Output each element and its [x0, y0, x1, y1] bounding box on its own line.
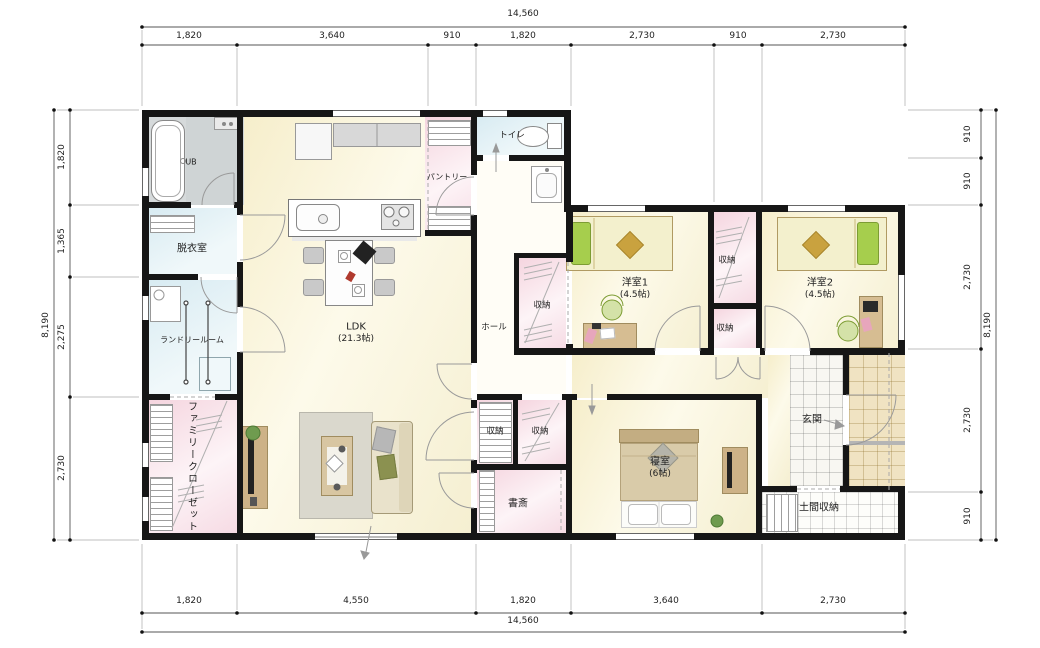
corridor	[572, 355, 768, 398]
closet-shelf	[150, 404, 173, 462]
placemat	[338, 250, 351, 263]
wall	[509, 155, 566, 161]
sofa-cushion	[376, 454, 397, 480]
entrance-hall-strip	[768, 355, 790, 486]
wall	[471, 215, 477, 363]
dining-chair	[374, 247, 395, 264]
bed-headboard	[619, 429, 699, 443]
label-bathroom: UB	[185, 159, 196, 168]
label-pantry: パントリー	[427, 174, 467, 183]
label-entrance: 玄関	[802, 415, 822, 426]
label-dressing: 脱衣室	[177, 244, 207, 255]
dining-chair	[374, 279, 395, 296]
window	[788, 205, 845, 212]
entrance-storage-shelf	[766, 494, 798, 532]
dim-top-segment: 1,820	[176, 31, 202, 41]
wall	[566, 400, 572, 533]
entrance-porch	[849, 353, 905, 490]
label-ldk: LDK	[346, 322, 366, 333]
dim-bottom-segment: 4,550	[343, 596, 369, 606]
wall	[708, 212, 714, 348]
label-hall: ホール	[481, 323, 507, 332]
wall	[898, 486, 905, 540]
dim-top-segment: 1,820	[510, 31, 536, 41]
window	[483, 110, 507, 117]
wall	[471, 508, 477, 533]
wall	[756, 400, 762, 533]
dim-right-segment: 910	[963, 507, 973, 524]
sofa-backrest	[399, 423, 412, 512]
window	[142, 296, 149, 320]
window	[142, 443, 149, 467]
wall	[566, 212, 573, 262]
washbasin-bowl	[536, 173, 557, 198]
wall	[477, 464, 566, 470]
wall	[762, 486, 797, 492]
label-bedroom2-size: (4.5帖)	[805, 291, 835, 301]
window	[333, 110, 420, 117]
washbasin	[531, 166, 562, 203]
drying-rack	[199, 357, 231, 391]
wall	[513, 400, 518, 464]
refrigerator	[295, 123, 332, 160]
bathtub-inner	[155, 125, 181, 197]
label-bedroom2: 洋室2	[807, 278, 833, 289]
wall	[708, 303, 762, 309]
dim-top-segment: 3,640	[319, 31, 345, 41]
dim-bottom-segment: 1,820	[176, 596, 202, 606]
dim-bottom-segment: 2,730	[820, 596, 846, 606]
wall	[149, 202, 191, 208]
wall	[843, 445, 849, 486]
pantry-shelf	[428, 120, 471, 146]
dim-top-segment: 910	[729, 31, 746, 41]
wall	[471, 400, 477, 408]
tv	[727, 452, 732, 488]
porch-step	[849, 441, 905, 445]
wall	[514, 348, 655, 355]
tv	[248, 434, 254, 494]
dim-left-segment: 2,275	[57, 324, 67, 350]
dim-right-segment: 910	[963, 172, 973, 189]
pantry-shelf	[428, 206, 471, 231]
dim-right-segment: 910	[963, 125, 973, 142]
wall	[760, 348, 765, 355]
dim-top-segment: 2,730	[629, 31, 655, 41]
label-study: 書斎	[508, 499, 528, 510]
dim-left-total: 8,190	[41, 312, 51, 338]
dim-bottom-segment: 3,640	[653, 596, 679, 606]
wall	[471, 117, 477, 175]
label-master-size: (6帖)	[649, 470, 671, 480]
bathtub	[151, 120, 185, 202]
wall	[700, 348, 714, 355]
label-storage: 収納	[718, 256, 735, 265]
window	[588, 205, 645, 212]
stove	[381, 204, 414, 230]
wall	[237, 352, 243, 533]
dim-left-segment: 1,365	[57, 228, 67, 254]
window-sliding	[315, 533, 397, 540]
wall	[843, 355, 849, 395]
wall	[756, 212, 762, 348]
dim-right-total: 8,190	[983, 312, 993, 338]
wall	[215, 394, 243, 400]
laptop	[863, 301, 878, 312]
wall	[149, 274, 198, 280]
tv-board	[722, 447, 748, 494]
pillow	[628, 504, 658, 525]
wall	[607, 394, 762, 400]
floor-plan: UB 脱衣室 ランドリールーム ファミリークローゼット LDK (21.3帖) …	[0, 0, 1040, 648]
dim-left-segment: 2,730	[57, 455, 67, 481]
wall	[142, 533, 905, 540]
window	[142, 497, 149, 521]
closet-shelf	[150, 477, 173, 531]
placemat	[352, 284, 365, 297]
laundry-sink	[150, 286, 181, 322]
wall	[564, 110, 571, 212]
window	[898, 275, 905, 340]
pillow	[661, 504, 691, 525]
toilet-tank	[547, 123, 562, 149]
label-bedroom1-size: (4.5帖)	[620, 291, 650, 301]
wall	[234, 202, 243, 208]
label-entrance-storage: 土間収納	[799, 503, 839, 514]
wall	[477, 155, 483, 161]
dim-left-segment: 1,820	[57, 144, 67, 170]
wall	[810, 348, 905, 355]
kitchen-sink	[296, 204, 340, 231]
desk-paper	[600, 327, 616, 339]
window	[616, 533, 694, 540]
dining-chair	[303, 279, 324, 296]
label-storage: 収納	[716, 324, 733, 333]
pillow	[571, 222, 591, 265]
dim-bottom-segment: 1,820	[510, 596, 536, 606]
dressing-shelf	[150, 215, 195, 233]
dim-right-segment: 2,730	[963, 264, 973, 290]
wall	[149, 394, 170, 400]
label-bedroom1: 洋室1	[622, 278, 648, 289]
label-toilet: トイレ	[499, 131, 525, 140]
wall	[237, 262, 243, 307]
label-family-closet: ファミリークローゼット	[184, 401, 199, 533]
wall	[519, 253, 566, 258]
dim-top-segment: 2,730	[820, 31, 846, 41]
label-laundry: ランドリールーム	[160, 337, 224, 346]
dining-chair	[303, 247, 324, 264]
dim-bottom-total: 14,560	[507, 616, 539, 626]
wall	[840, 486, 898, 492]
label-ldk-size: (21.3帖)	[338, 335, 374, 345]
label-master-bedroom: 寝室	[650, 457, 670, 468]
pillow	[857, 222, 879, 265]
wall	[237, 117, 243, 215]
label-storage: 収納	[486, 427, 503, 436]
dim-top-total: 14,560	[507, 9, 539, 19]
dim-top-segment: 910	[443, 31, 460, 41]
desk-item	[592, 323, 601, 329]
wall	[425, 230, 477, 236]
kitchen-cabinet	[333, 123, 421, 147]
dim-right-segment: 2,730	[963, 407, 973, 433]
window	[142, 168, 149, 196]
wall	[514, 253, 519, 348]
label-storage: 収納	[533, 301, 550, 310]
speaker	[250, 497, 257, 506]
study-shelf	[479, 470, 495, 532]
label-storage: 収納	[531, 427, 548, 436]
